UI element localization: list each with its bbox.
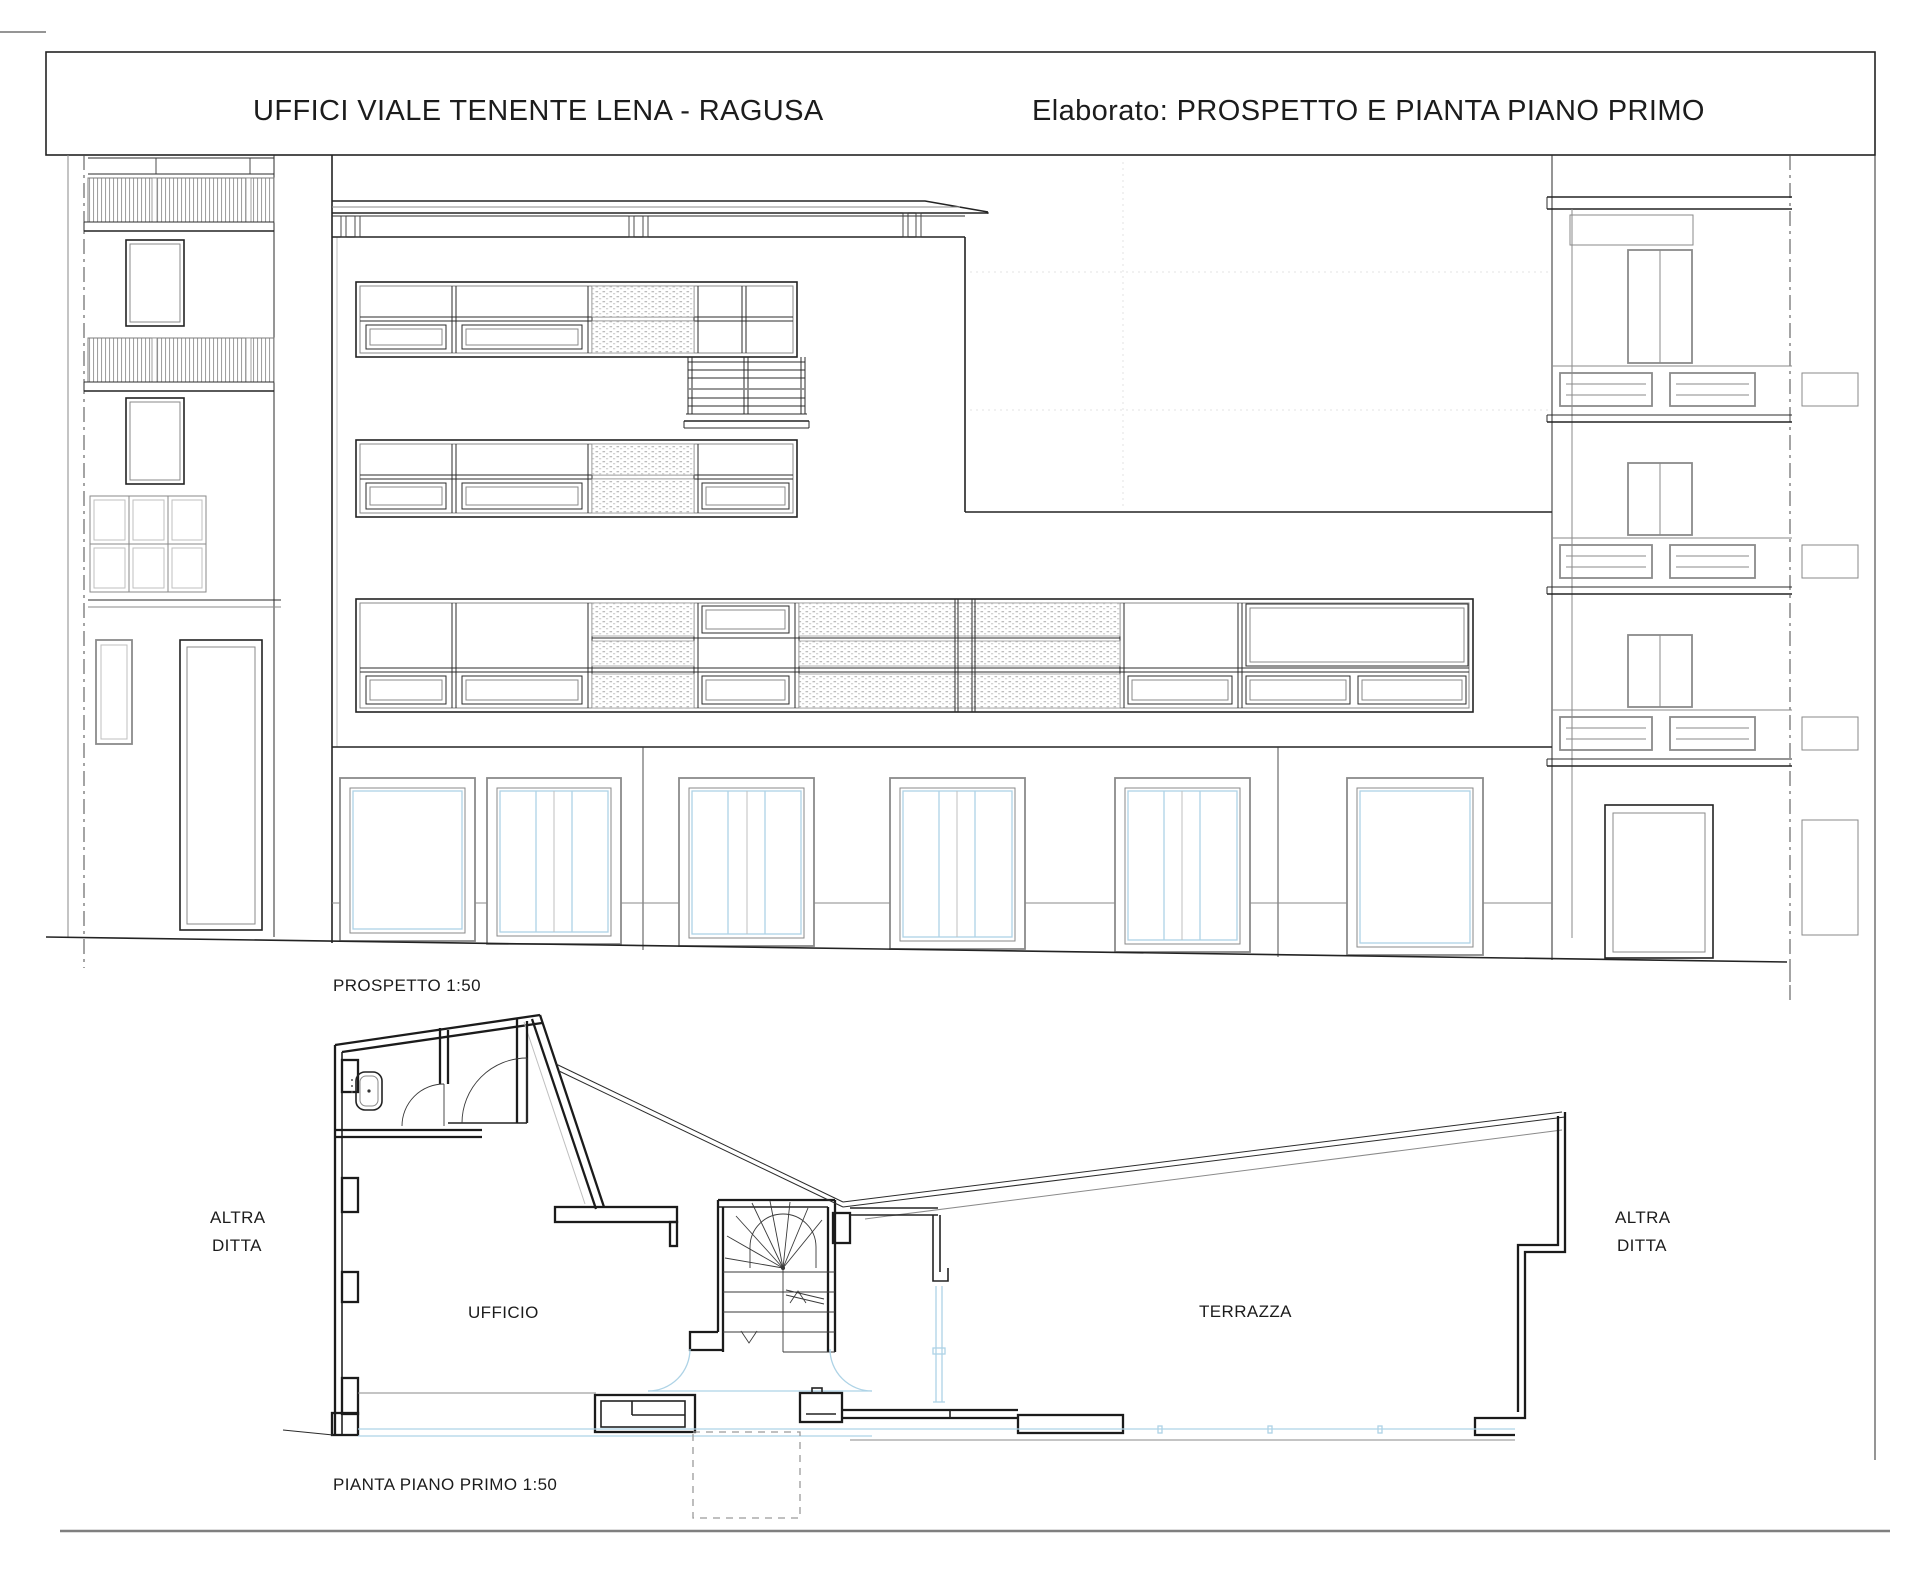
- sidewalk-line: [283, 1430, 333, 1435]
- winder-stair: [723, 1201, 835, 1352]
- dashed-projection-outline: [693, 1432, 800, 1518]
- plan-caption: PIANTA PIANO PRIMO 1:50: [333, 1475, 557, 1494]
- neighbor-door: [180, 640, 262, 930]
- hatched-panel: [592, 674, 694, 708]
- elevation-drawing: PROSPETTO 1:50: [46, 155, 1875, 1460]
- plan-right-wall: [1475, 1112, 1565, 1435]
- window-band-first-floor-upper: [356, 440, 797, 517]
- plan-outline-walls: [283, 1015, 604, 1435]
- stairwell: [690, 1200, 850, 1352]
- left-neighbor-building: [84, 155, 281, 937]
- hatched-panel: [592, 603, 694, 636]
- title-block: UFFICI VIALE TENENTE LENA - RAGUSA Elabo…: [0, 32, 1875, 155]
- hatched-panel: [799, 674, 1120, 708]
- roof-canopy: [332, 201, 988, 237]
- neighbor-ground-door: [1605, 805, 1713, 958]
- storefront-window: [340, 778, 475, 941]
- elaborato-title: Elaborato: PROSPETTO E PIANTA PIANO PRIM…: [1032, 95, 1705, 127]
- adjacent-left-label-line1: ALTRA: [210, 1208, 266, 1227]
- lobby-glass-wall: [850, 1208, 948, 1402]
- storefront-window: [1347, 778, 1483, 955]
- storefront-door: [679, 778, 814, 946]
- window-band-piano-primo: [356, 599, 1473, 712]
- door-swing-arc: [402, 1084, 444, 1126]
- hatched-panel: [592, 479, 694, 513]
- entrance-pier: [800, 1388, 842, 1422]
- adjacent-right-label-line2: DITTA: [1617, 1236, 1667, 1255]
- architectural-drawing: UFFICI VIALE TENENTE LENA - RAGUSA Elabo…: [0, 0, 1920, 1583]
- hatched-panel: [799, 603, 1120, 636]
- drawing-sheet: UFFICI VIALE TENENTE LENA - RAGUSA Elabo…: [0, 0, 1920, 1583]
- entrance-door: [648, 1349, 872, 1391]
- door-swing-arc: [648, 1349, 690, 1391]
- neighbor-floor-unit: [1547, 635, 1858, 766]
- adjacent-left-label-line2: DITTA: [212, 1236, 262, 1255]
- balcony-second-floor: [684, 357, 809, 428]
- display-window-box: [595, 1395, 695, 1432]
- neighbor-floor-unit: [1547, 250, 1858, 422]
- bathroom: [335, 1019, 527, 1137]
- elevation-caption: PROSPETTO 1:50: [333, 976, 481, 995]
- storefront-door: [1115, 778, 1250, 952]
- storefront-door: [890, 778, 1025, 949]
- wall-pier: [342, 1378, 358, 1414]
- terrace-boundary: [556, 1064, 1565, 1219]
- ground-floor-storefronts: [332, 747, 1552, 957]
- floor-plan: ALTRA DITTA UFFICIO TERRAZZA ALTRA DITTA…: [60, 962, 1890, 1531]
- sink-icon: [351, 1072, 382, 1110]
- hatched-panel: [592, 321, 694, 353]
- door-swing-arc: [830, 1349, 872, 1391]
- stair-down-arrow: [741, 1331, 757, 1343]
- main-building-facade: [332, 155, 1552, 960]
- hatched-panel: [592, 444, 694, 475]
- terrace-low-wall: [1018, 1415, 1123, 1433]
- wall-pier: [342, 1178, 358, 1212]
- hatched-panel: [592, 286, 694, 317]
- neighbor-window: [126, 398, 184, 484]
- neighbor-floor-unit: [1547, 463, 1858, 594]
- room-label-ufficio: UFFICIO: [468, 1303, 539, 1322]
- wall-pier: [342, 1272, 358, 1302]
- corridor-wall: [555, 1207, 677, 1246]
- adjacent-right-label-line1: ALTRA: [1615, 1208, 1671, 1227]
- storefront-door: [487, 778, 621, 944]
- neighbor-grid-window: [90, 496, 206, 592]
- hatched-panel: [799, 641, 1120, 666]
- right-neighbor-building: [1547, 155, 1875, 1460]
- canopy-posts: [341, 213, 921, 237]
- hatched-panel: [592, 641, 694, 666]
- project-title: UFFICI VIALE TENENTE LENA - RAGUSA: [253, 95, 824, 127]
- room-label-terrazza: TERRAZZA: [1199, 1302, 1292, 1321]
- diagonal-wall: [540, 1015, 604, 1207]
- window-band-second-floor: [356, 282, 797, 357]
- neighbor-window: [126, 240, 184, 326]
